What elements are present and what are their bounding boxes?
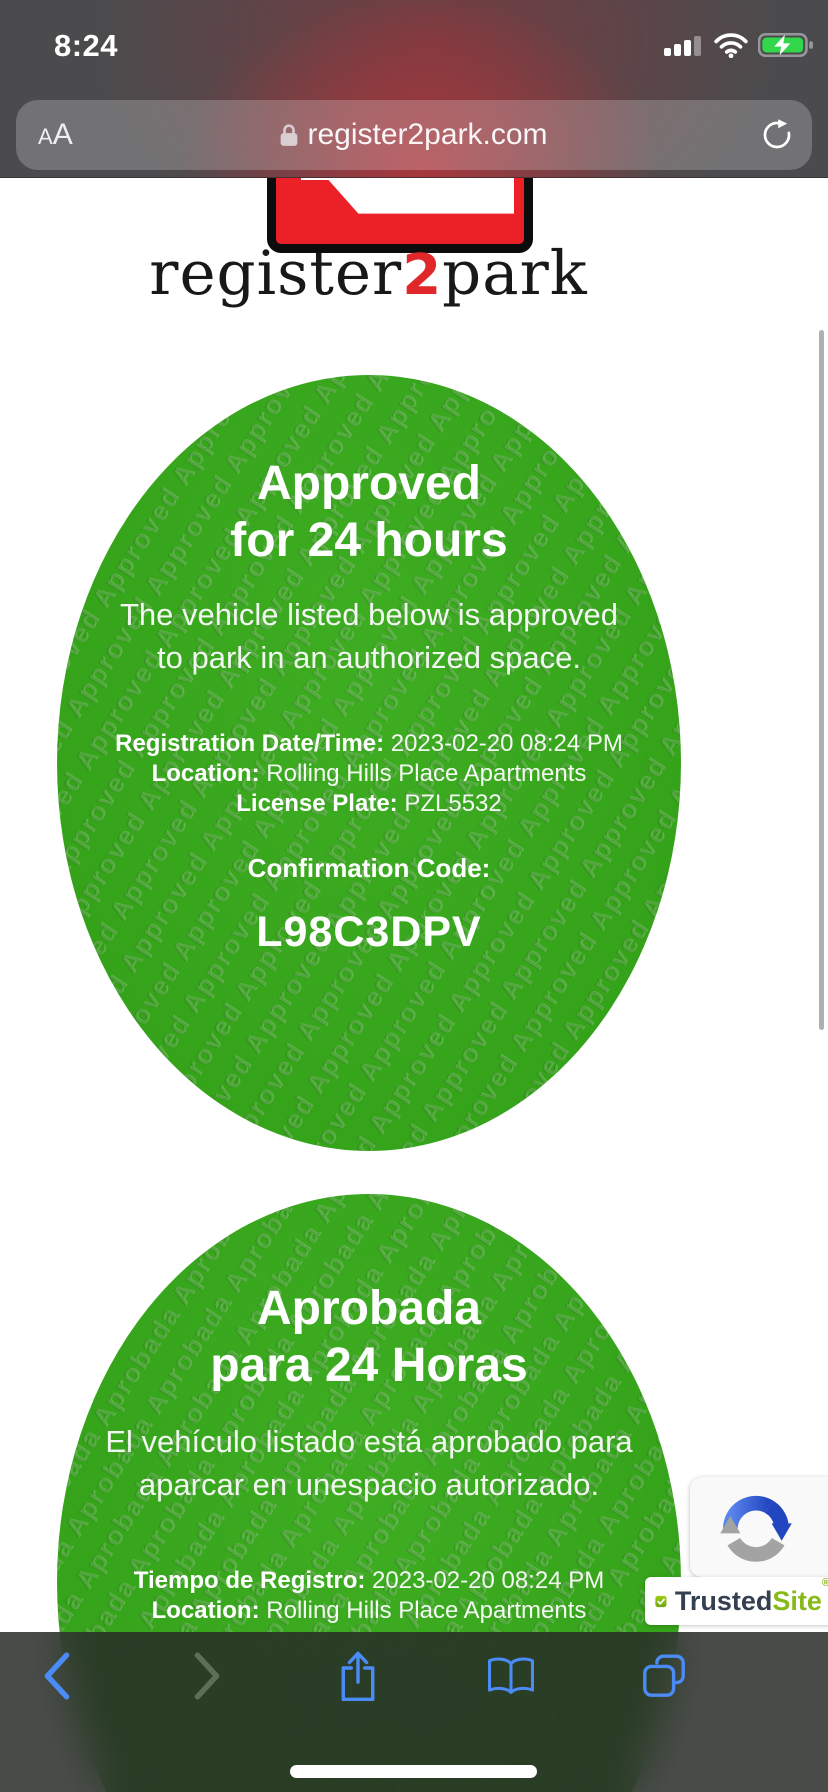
tabs-button[interactable] [636, 1648, 692, 1704]
forward-button[interactable] [179, 1648, 235, 1704]
confirmation-code-label: Confirmation Code: [57, 853, 681, 884]
approval-card-english: proved Approved Approved Approved Approv… [57, 375, 681, 1151]
wifi-icon [714, 32, 748, 58]
approval-subtitle-es: El vehículo listado está aprobado para a… [57, 1420, 681, 1506]
confirmation-code-value: L98C3DPV [57, 908, 681, 957]
bookmarks-button[interactable] [483, 1648, 539, 1704]
recaptcha-badge[interactable] [690, 1477, 828, 1577]
chevron-left-icon [42, 1652, 72, 1700]
back-button[interactable] [29, 1648, 85, 1704]
share-button[interactable] [330, 1648, 386, 1704]
status-bar: 8:24 [0, 24, 828, 68]
reload-button[interactable] [760, 118, 794, 152]
share-icon [337, 1649, 379, 1703]
cell-signal-icon [664, 32, 704, 58]
url-domain-text: register2park.com [307, 118, 547, 152]
chevron-right-icon [192, 1652, 222, 1700]
book-icon [485, 1654, 537, 1698]
safari-toolbar [0, 1632, 828, 1792]
detail-row: License Plate: PZL5532 [57, 789, 681, 819]
registration-details: Registration Date/Time: 2023-02-20 08:24… [57, 729, 681, 819]
safari-header: 8:24 [0, 0, 828, 178]
wordmark-number: 2 [402, 243, 442, 308]
approval-title-es: Aprobada para 24 Horas [57, 1194, 681, 1394]
wordmark-pre: register [149, 238, 402, 309]
detail-row: Location: Rolling Hills Place Apartments [57, 759, 681, 789]
trustedsite-badge[interactable]: TrustedSite® [645, 1577, 828, 1625]
address-bar[interactable]: AA register2park.com [16, 100, 812, 170]
detail-row: Registration Date/Time: 2023-02-20 08:24… [57, 729, 681, 759]
approval-subtitle: The vehicle listed below is approved to … [57, 593, 681, 679]
scrollbar-thumb[interactable] [819, 330, 824, 1030]
iphone-safari-screen: register2park proved Approved Approved A… [0, 0, 828, 1792]
detail-row: Location: Rolling Hills Place Apartments [57, 1596, 681, 1626]
registration-details-es: Tiempo de Registro: 2023-02-20 08:24 PML… [57, 1566, 681, 1626]
battery-charging-icon [758, 32, 814, 58]
site-wordmark: register2park [0, 238, 737, 309]
approval-title: Approved for 24 hours [57, 375, 681, 569]
tabs-icon [640, 1652, 688, 1700]
detail-row: Tiempo de Registro: 2023-02-20 08:24 PM [57, 1566, 681, 1596]
recaptcha-icon [712, 1483, 800, 1571]
trustedsite-label: TrustedSite® [675, 1586, 828, 1617]
wordmark-post: park [442, 238, 588, 309]
trustedsite-check-icon [655, 1585, 667, 1618]
lock-icon [280, 123, 298, 147]
clock: 8:24 [38, 28, 134, 64]
home-indicator[interactable] [290, 1765, 537, 1778]
